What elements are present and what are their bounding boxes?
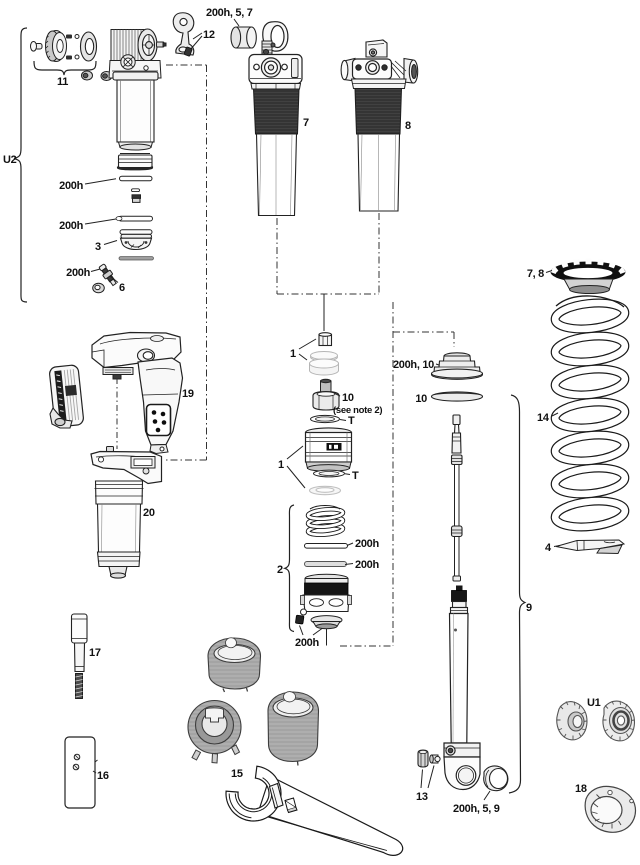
svg-text:13: 13 xyxy=(416,791,428,803)
svg-text:6: 6 xyxy=(119,282,125,294)
svg-text:11: 11 xyxy=(57,76,68,88)
svg-text:U2: U2 xyxy=(3,154,17,166)
svg-text:7, 8: 7, 8 xyxy=(527,268,544,280)
svg-text:200h, 10: 200h, 10 xyxy=(393,359,434,371)
svg-text:200h, 5, 9: 200h, 5, 9 xyxy=(453,803,500,815)
svg-text:200h, 5, 7: 200h, 5, 7 xyxy=(206,7,253,19)
svg-text:17: 17 xyxy=(89,647,101,659)
svg-text:T: T xyxy=(352,470,359,482)
svg-text:200h: 200h xyxy=(355,559,379,571)
svg-text:200h: 200h xyxy=(66,267,90,279)
svg-text:(see note 2): (see note 2) xyxy=(333,405,382,416)
svg-text:10: 10 xyxy=(342,392,354,404)
svg-text:3: 3 xyxy=(95,241,101,253)
svg-text:14: 14 xyxy=(537,412,550,424)
svg-text:U1: U1 xyxy=(587,697,601,709)
svg-text:200h: 200h xyxy=(295,637,319,649)
svg-text:16: 16 xyxy=(97,770,109,782)
svg-text:2: 2 xyxy=(277,564,283,576)
svg-text:19: 19 xyxy=(182,388,194,400)
svg-text:200h: 200h xyxy=(59,180,83,192)
svg-text:15: 15 xyxy=(231,768,243,780)
svg-text:20: 20 xyxy=(143,507,155,519)
svg-text:7: 7 xyxy=(303,117,309,129)
svg-text:18: 18 xyxy=(575,783,587,795)
svg-text:1: 1 xyxy=(290,348,296,360)
svg-text:9: 9 xyxy=(526,602,532,614)
svg-text:12: 12 xyxy=(203,29,215,41)
svg-text:1: 1 xyxy=(278,459,284,471)
svg-text:200h: 200h xyxy=(59,220,83,232)
svg-text:10: 10 xyxy=(415,393,427,405)
svg-text:200h: 200h xyxy=(355,538,379,550)
svg-text:8: 8 xyxy=(405,120,411,132)
svg-text:T: T xyxy=(348,415,355,427)
